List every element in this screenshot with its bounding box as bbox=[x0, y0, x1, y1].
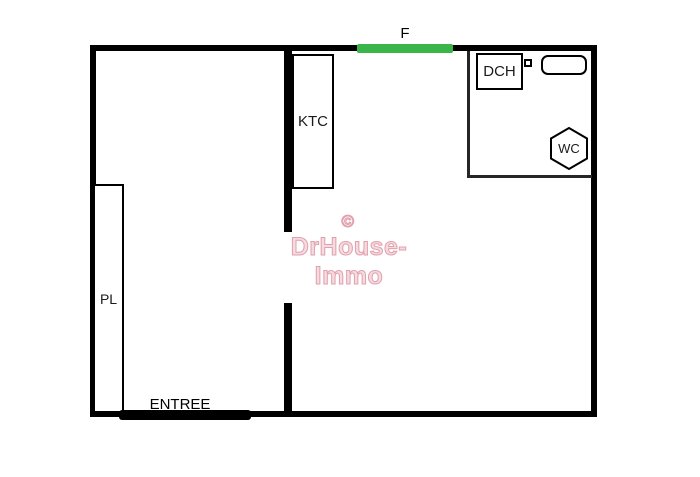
toilet-hexagon: WC bbox=[550, 127, 588, 170]
bathroom-partition-horizontal bbox=[467, 175, 592, 178]
kitchenette-box: KTC bbox=[292, 54, 334, 189]
window-label: F bbox=[357, 25, 453, 42]
watermark-brand-text: DrHouse-Immo bbox=[258, 233, 440, 291]
washbasin bbox=[541, 55, 587, 75]
shower-knob-square bbox=[524, 59, 532, 67]
watermark-copyright-icon: © bbox=[330, 212, 366, 232]
shower-label: DCH bbox=[483, 63, 516, 80]
bathroom-partition-vertical bbox=[467, 51, 470, 177]
interior-wall-upper-segment bbox=[284, 48, 292, 232]
kitchenette-label: KTC bbox=[298, 113, 328, 130]
shower-box: DCH bbox=[476, 53, 523, 90]
closet-box: PL bbox=[93, 184, 124, 413]
entrance-door-bar bbox=[119, 410, 251, 420]
floor-plan-canvas: F KTC DCH WC PL ENTREE © DrHouse-Immo bbox=[0, 0, 700, 477]
interior-wall-lower-segment bbox=[284, 303, 292, 415]
toilet-label: WC bbox=[558, 141, 580, 156]
closet-label: PL bbox=[100, 291, 117, 307]
window-bar bbox=[357, 44, 453, 53]
